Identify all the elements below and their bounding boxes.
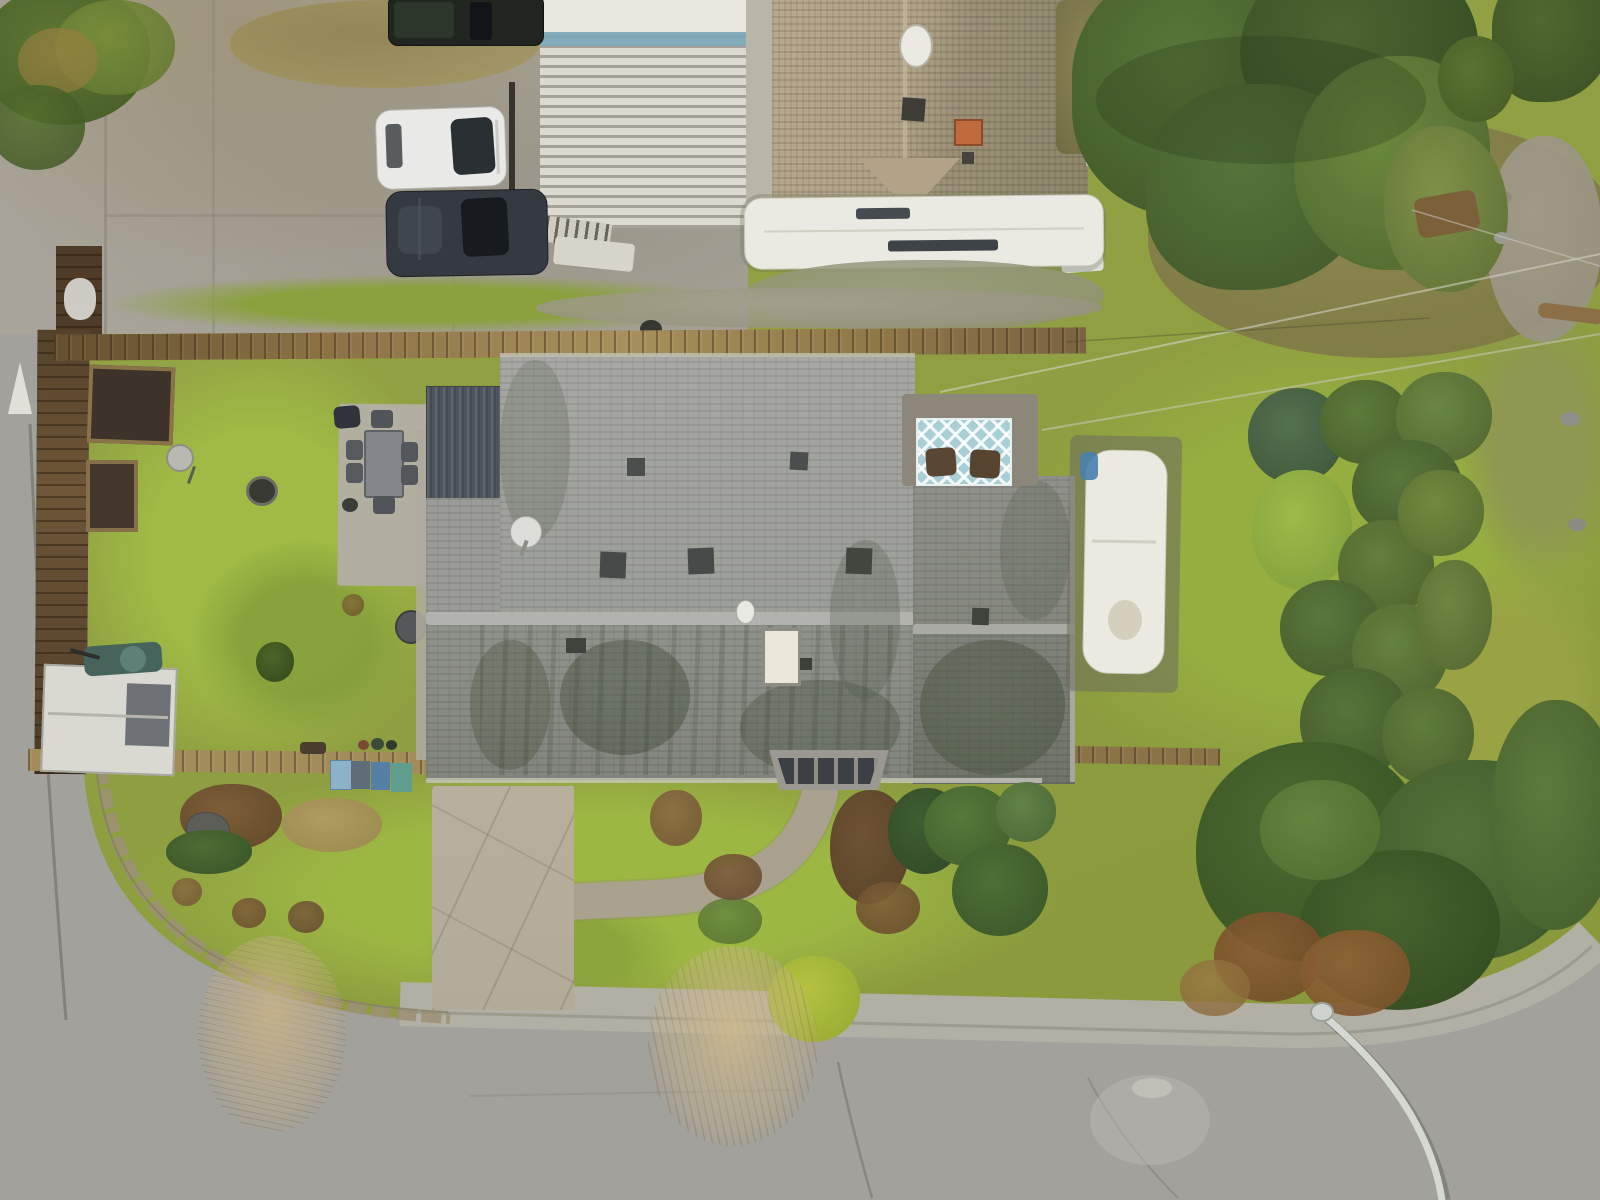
utility-wire [940, 254, 1600, 392]
streetlight-pole [1322, 1014, 1442, 1200]
utility-wire-2 [1042, 334, 1600, 430]
aerial-photo [0, 0, 1600, 1200]
overlay-layer [0, 0, 1600, 1200]
streetlight-head [1311, 1003, 1333, 1021]
streetlight-pole-shadow [1326, 1018, 1446, 1200]
utility-wire-3 [1412, 210, 1600, 266]
utility-wire-4 [1066, 318, 1430, 342]
